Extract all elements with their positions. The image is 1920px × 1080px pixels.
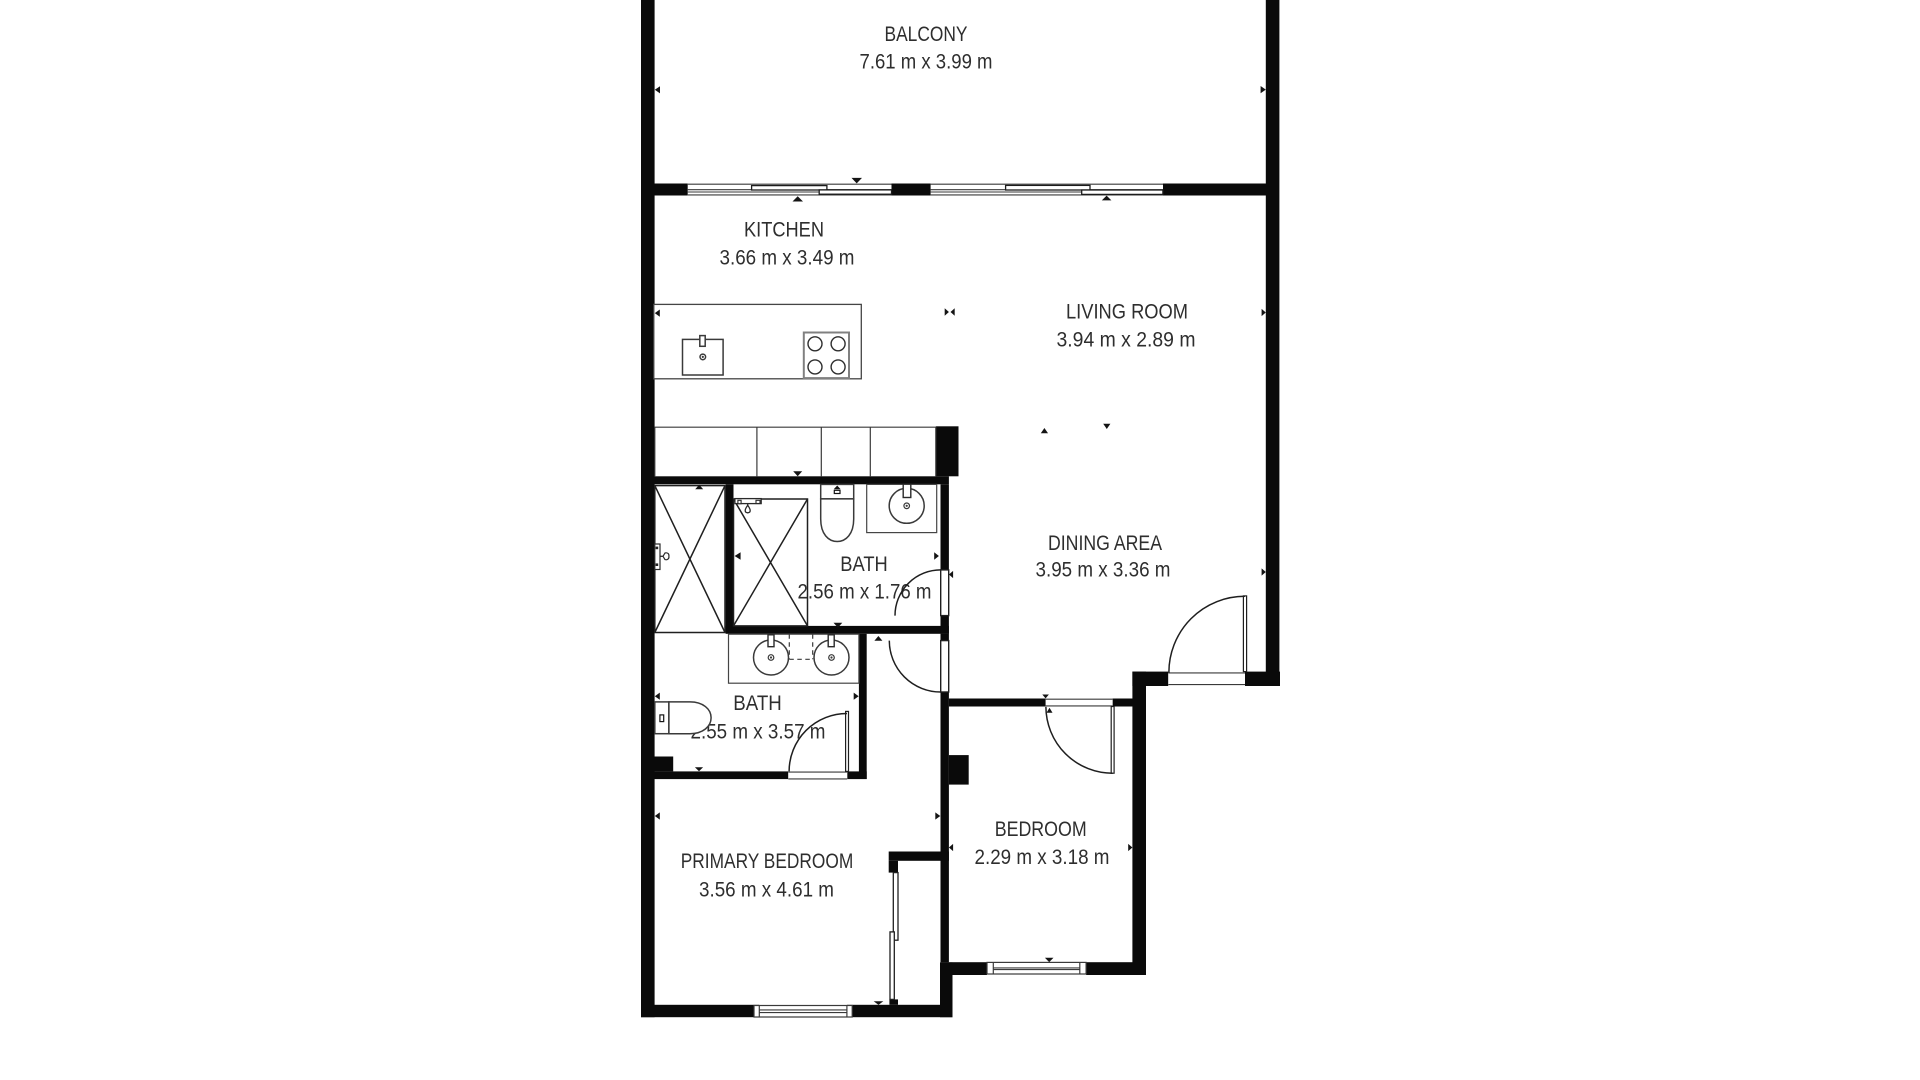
- svg-text:7.61 m x 3.99 m: 7.61 m x 3.99 m: [860, 51, 993, 74]
- svg-text:3.94 m x 2.89 m: 3.94 m x 2.89 m: [1057, 329, 1196, 352]
- svg-text:DINING AREA: DINING AREA: [1048, 532, 1162, 555]
- svg-text:2.56 m x 1.76 m: 2.56 m x 1.76 m: [798, 581, 932, 604]
- svg-text:BALCONY: BALCONY: [885, 23, 968, 46]
- svg-text:BEDROOM: BEDROOM: [995, 818, 1087, 841]
- svg-text:2.29 m x 3.18 m: 2.29 m x 3.18 m: [975, 846, 1110, 869]
- svg-text:BATH: BATH: [733, 692, 782, 715]
- svg-text:BATH: BATH: [840, 553, 888, 576]
- svg-text:PRIMARY BEDROOM: PRIMARY BEDROOM: [681, 850, 854, 873]
- svg-text:3.95 m x 3.36 m: 3.95 m x 3.36 m: [1036, 559, 1171, 582]
- svg-text:3.56 m x 4.61 m: 3.56 m x 4.61 m: [699, 879, 834, 902]
- svg-text:LIVING ROOM: LIVING ROOM: [1066, 301, 1188, 324]
- svg-text:3.66 m x 3.49 m: 3.66 m x 3.49 m: [720, 247, 855, 270]
- svg-text:KITCHEN: KITCHEN: [744, 219, 824, 242]
